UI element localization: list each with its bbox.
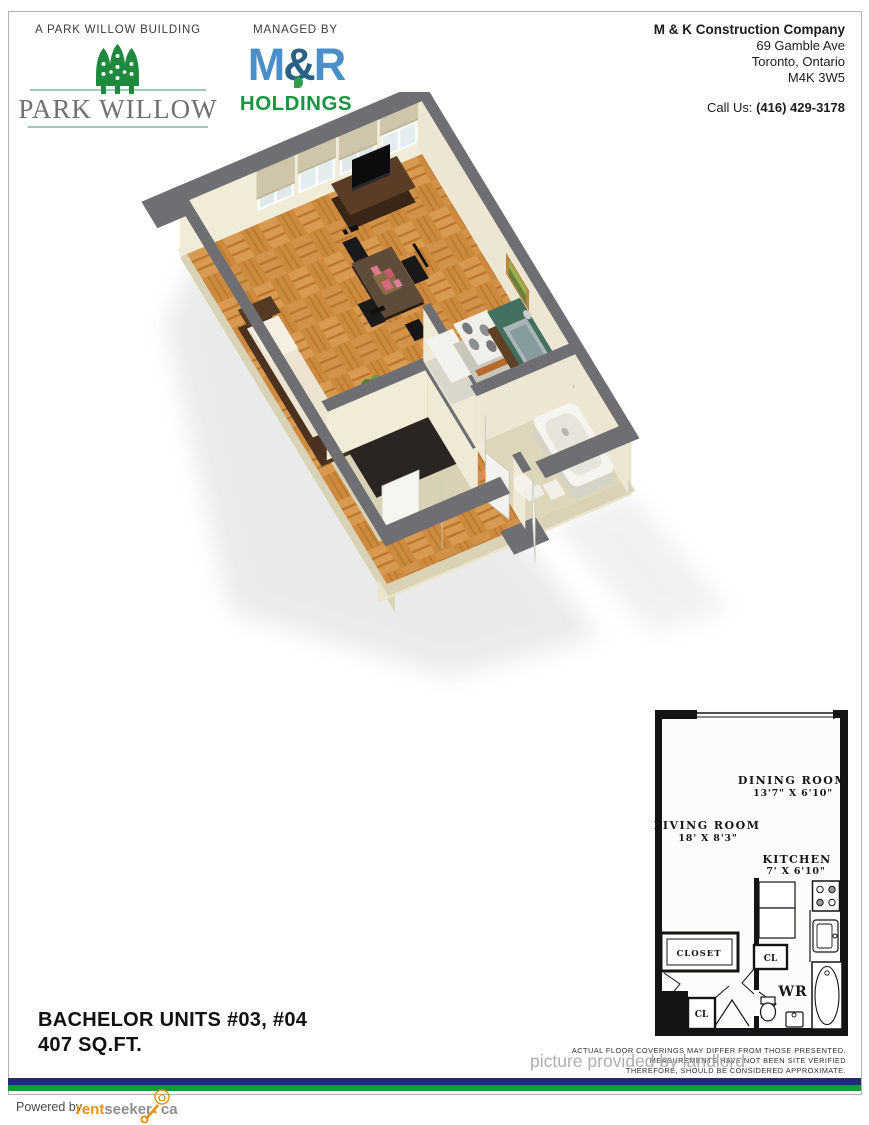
contact-address2: Toronto, Ontario <box>654 54 845 70</box>
contact-postal: M4K 3W5 <box>654 70 845 86</box>
unit-size: 407 SQ.FT. <box>38 1033 307 1058</box>
dining-room-dims: 13'7" X 6'10" <box>753 788 833 799</box>
unit-info: BACHELOR UNITS #03, #04 407 SQ.FT. <box>38 1008 307 1058</box>
powered-by-label: Powered by <box>16 1100 82 1114</box>
contact-phone: (416) 429-3178 <box>756 100 845 115</box>
kitchen-label: KITCHEN <box>763 853 832 866</box>
cl-label-2: CL <box>695 1010 709 1020</box>
floor-plan-3d <box>130 92 750 692</box>
living-room-dims: 18' X 8'3" <box>678 833 737 844</box>
landlord-watermark: picture provided by landlord <box>530 1051 745 1072</box>
wr-label: WR <box>777 984 807 1000</box>
mr-leaf-icon <box>294 77 303 88</box>
rentseeker-rent: rent <box>76 1101 104 1118</box>
park-willow-trees-icon <box>86 42 150 96</box>
contact-address1: 69 Gamble Ave <box>654 38 845 54</box>
building-label: A PARK WILLOW BUILDING <box>22 24 214 36</box>
bathtub-2d <box>812 962 842 1029</box>
rentseeker-key-house-icon <box>134 1089 180 1123</box>
contact-company: M & K Construction Company <box>654 22 845 38</box>
mr-logo: M&R <box>236 42 356 87</box>
cl-label-1: CL <box>764 954 778 964</box>
wall-mass-2d <box>655 991 688 1036</box>
mr-logo-ampersand: & <box>283 39 314 90</box>
stove-2d <box>813 881 840 911</box>
unit-title: BACHELOR UNITS #03, #04 <box>38 1008 307 1033</box>
wr-sink-2d <box>786 1012 803 1027</box>
closet-label: CLOSET <box>676 949 721 959</box>
rentseeker-logo: rentseekerca <box>76 1089 206 1123</box>
flyer-page: A PARK WILLOW BUILDING MANAGED BY PARK W… <box>0 0 869 1125</box>
footer-stripe-navy <box>8 1078 861 1085</box>
toilet-2d <box>761 1003 776 1021</box>
kitchen-dims: 7' X 6'10" <box>766 866 825 877</box>
mr-logo-r: R <box>314 39 345 90</box>
dining-room-label: DINING ROOM <box>738 774 848 787</box>
mr-logo-m: M <box>248 39 284 90</box>
floor-plan-2d: DINING ROOM 13'7" X 6'10" LIVING ROOM 18… <box>650 706 850 1040</box>
managed-by-label: MANAGED BY <box>238 24 353 36</box>
living-room-label: LIVING ROOM <box>654 819 761 832</box>
